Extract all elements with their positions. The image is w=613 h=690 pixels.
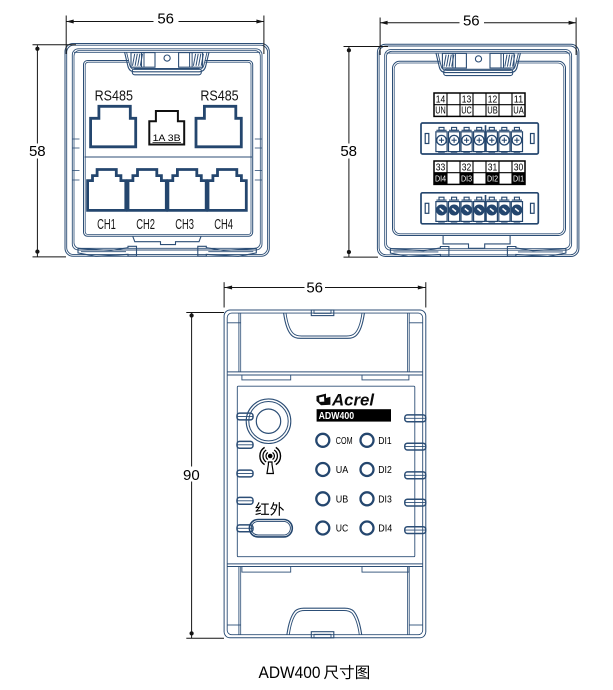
svg-text:DI4: DI4 — [435, 173, 446, 183]
svg-text:RS485: RS485 — [95, 88, 133, 104]
svg-text:DI4: DI4 — [378, 524, 392, 535]
svg-text:56: 56 — [157, 10, 174, 27]
svg-text:DI3: DI3 — [461, 173, 472, 183]
svg-text:CH4: CH4 — [214, 217, 233, 233]
svg-text:ADW400: ADW400 — [319, 410, 355, 422]
svg-text:58: 58 — [29, 143, 46, 160]
svg-text:CH3: CH3 — [175, 217, 194, 233]
svg-text:UC: UC — [336, 524, 349, 535]
svg-text:UB: UB — [487, 105, 498, 117]
svg-text:UC: UC — [461, 105, 472, 117]
svg-text:DI1: DI1 — [378, 436, 392, 447]
svg-text:CH2: CH2 — [136, 217, 155, 233]
svg-text:DI2: DI2 — [378, 465, 392, 476]
svg-text:Acrel: Acrel — [331, 392, 374, 410]
svg-text:32: 32 — [462, 162, 472, 174]
svg-text:ADW400: ADW400 — [259, 663, 321, 682]
svg-text:DI2: DI2 — [487, 173, 498, 183]
svg-text:UN: UN — [435, 105, 446, 117]
svg-text:UA: UA — [336, 465, 349, 476]
svg-text:DI3: DI3 — [378, 495, 392, 506]
svg-text:UB: UB — [336, 495, 349, 506]
svg-text:33: 33 — [436, 162, 446, 174]
svg-text:COM: COM — [336, 436, 353, 447]
svg-text:31: 31 — [488, 162, 498, 174]
svg-text:90: 90 — [183, 467, 200, 484]
svg-text:CH1: CH1 — [97, 217, 116, 233]
svg-text:RS485: RS485 — [200, 88, 238, 104]
svg-text:DI1: DI1 — [513, 173, 524, 183]
svg-text:56: 56 — [463, 12, 480, 29]
svg-text:58: 58 — [340, 143, 357, 160]
svg-text:UA: UA — [513, 105, 524, 117]
svg-text:56: 56 — [306, 280, 323, 297]
svg-text:30: 30 — [514, 162, 524, 174]
